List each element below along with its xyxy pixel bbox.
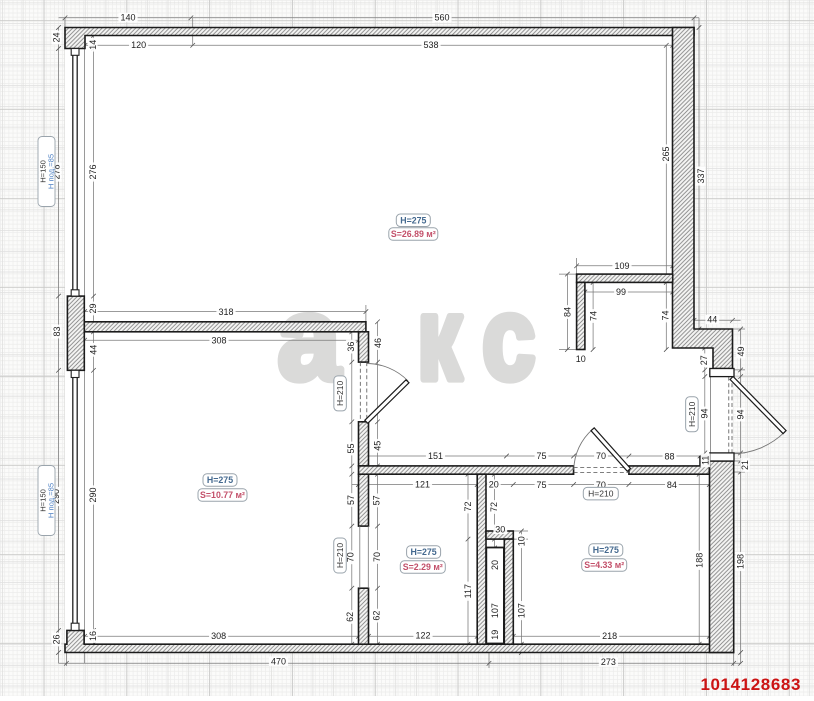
svg-text:121: 121: [415, 480, 430, 490]
svg-text:S=4.33 м²: S=4.33 м²: [584, 560, 624, 570]
svg-text:198: 198: [736, 554, 746, 569]
svg-text:276: 276: [88, 164, 98, 179]
svg-text:45: 45: [372, 441, 382, 451]
svg-text:88: 88: [664, 451, 674, 461]
svg-text:109: 109: [614, 261, 629, 271]
svg-text:75: 75: [536, 480, 546, 490]
svg-text:70: 70: [372, 552, 382, 562]
svg-text:74: 74: [661, 310, 671, 320]
svg-text:36: 36: [346, 342, 356, 352]
svg-text:538: 538: [423, 40, 438, 50]
svg-text:94: 94: [736, 409, 746, 419]
svg-text:10: 10: [576, 354, 586, 364]
svg-text:273: 273: [601, 657, 616, 667]
svg-text:560: 560: [434, 13, 449, 23]
svg-text:470: 470: [271, 656, 286, 666]
svg-text:H=210: H=210: [335, 543, 345, 569]
svg-text:S=2.29 м²: S=2.29 м²: [403, 562, 443, 572]
svg-text:к: к: [417, 273, 462, 405]
svg-text:120: 120: [131, 40, 146, 50]
svg-text:140: 140: [120, 13, 135, 23]
svg-text:24: 24: [52, 32, 62, 42]
svg-text:107: 107: [490, 603, 500, 618]
svg-text:H=210: H=210: [335, 380, 345, 406]
svg-text:14: 14: [88, 40, 98, 50]
svg-text:H=210: H=210: [687, 401, 697, 427]
svg-text:H=275: H=275: [400, 215, 426, 225]
svg-text:H=275: H=275: [207, 475, 233, 485]
svg-text:H под.=85: H под.=85: [46, 483, 55, 518]
svg-text:62: 62: [345, 612, 355, 622]
svg-text:29: 29: [88, 303, 98, 313]
svg-text:49: 49: [736, 346, 746, 356]
svg-text:218: 218: [602, 631, 617, 641]
svg-text:57: 57: [346, 495, 356, 505]
svg-text:S=26.89 м²: S=26.89 м²: [391, 229, 436, 239]
svg-text:308: 308: [211, 631, 226, 641]
svg-text:10: 10: [517, 536, 527, 546]
svg-text:70: 70: [596, 451, 606, 461]
svg-text:27: 27: [699, 355, 709, 365]
svg-text:70: 70: [346, 552, 356, 562]
svg-text:74: 74: [588, 311, 598, 321]
svg-text:H под.=85: H под.=85: [46, 154, 55, 189]
svg-text:21: 21: [740, 460, 750, 470]
svg-text:122: 122: [415, 631, 430, 641]
svg-text:а: а: [278, 274, 341, 405]
svg-text:290: 290: [88, 487, 98, 502]
svg-text:19: 19: [490, 630, 500, 640]
svg-text:94: 94: [700, 408, 710, 418]
svg-text:H=210: H=210: [588, 489, 614, 499]
svg-text:20: 20: [489, 480, 499, 490]
svg-text:151: 151: [428, 451, 443, 461]
svg-text:57: 57: [372, 495, 382, 505]
svg-text:62: 62: [372, 611, 382, 621]
svg-text:337: 337: [696, 168, 706, 183]
svg-text:99: 99: [616, 287, 626, 297]
svg-text:16: 16: [88, 631, 98, 641]
svg-text:84: 84: [667, 480, 677, 490]
svg-text:72: 72: [489, 502, 499, 512]
svg-text:30: 30: [495, 525, 505, 535]
svg-text:55: 55: [346, 443, 356, 453]
svg-text:H=275: H=275: [411, 547, 437, 557]
svg-text:46: 46: [373, 338, 383, 348]
svg-text:44: 44: [707, 315, 717, 325]
svg-text:44: 44: [88, 345, 98, 355]
svg-text:265: 265: [661, 146, 671, 161]
svg-text:308: 308: [211, 336, 226, 346]
svg-text:20: 20: [490, 560, 500, 570]
svg-text:188: 188: [694, 553, 704, 568]
svg-text:83: 83: [52, 326, 62, 336]
svg-text:117: 117: [463, 584, 473, 598]
svg-text:84: 84: [563, 307, 573, 317]
svg-text:с: с: [482, 273, 536, 404]
svg-text:S=10.77 м²: S=10.77 м²: [200, 490, 245, 500]
svg-text:107: 107: [517, 603, 527, 618]
svg-text:75: 75: [536, 451, 546, 461]
svg-text:11: 11: [701, 456, 711, 465]
svg-text:26: 26: [52, 634, 62, 644]
svg-text:1014128683: 1014128683: [700, 675, 801, 694]
svg-text:318: 318: [218, 307, 233, 317]
svg-text:72: 72: [463, 501, 473, 511]
svg-text:H=275: H=275: [593, 545, 619, 555]
